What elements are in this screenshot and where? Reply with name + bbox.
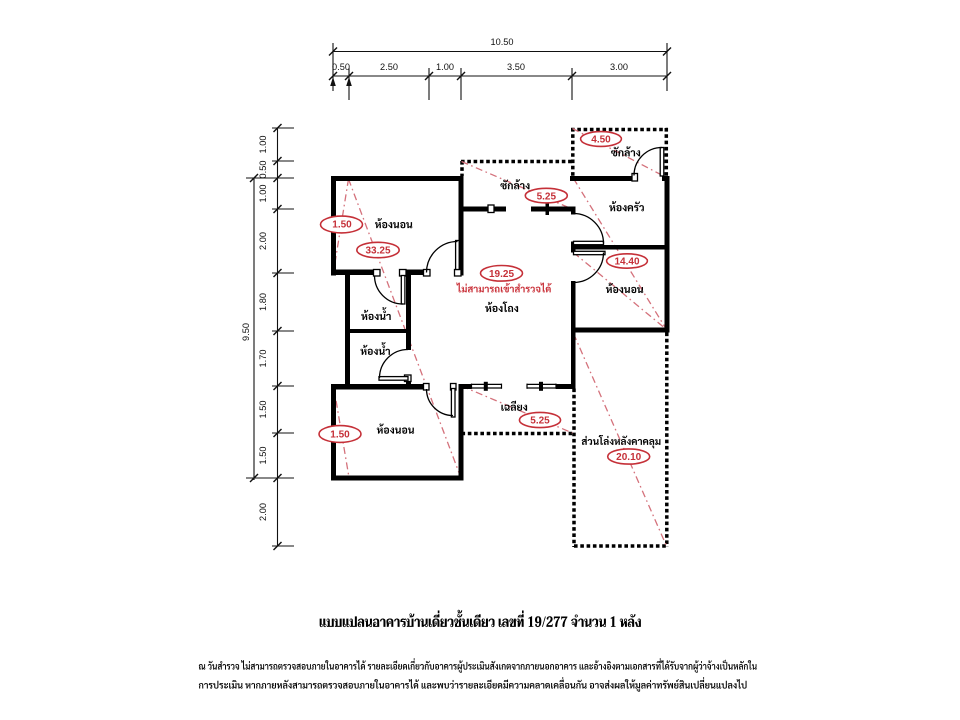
svg-text:1.50: 1.50: [332, 220, 352, 231]
svg-text:1.50: 1.50: [258, 447, 268, 465]
svg-text:1.00: 1.00: [258, 136, 268, 154]
svg-text:1.80: 1.80: [258, 293, 268, 311]
svg-text:20.10: 20.10: [616, 452, 641, 463]
svg-text:2.00: 2.00: [258, 232, 268, 250]
svg-text:14.40: 14.40: [614, 257, 639, 268]
svg-text:9.50: 9.50: [241, 323, 251, 341]
svg-text:3.00: 3.00: [610, 62, 628, 72]
svg-text:1.70: 1.70: [258, 350, 268, 368]
svg-text:2.00: 2.00: [258, 503, 268, 521]
svg-text:5.25: 5.25: [530, 416, 550, 427]
svg-text:1.00: 1.00: [436, 62, 454, 72]
svg-text:33.25: 33.25: [365, 246, 390, 257]
svg-text:1.50: 1.50: [330, 430, 350, 441]
svg-text:10.50: 10.50: [491, 37, 514, 47]
svg-text:0.50: 0.50: [258, 161, 268, 179]
svg-text:1.00: 1.00: [258, 185, 268, 203]
svg-text:3.50: 3.50: [507, 62, 525, 72]
svg-text:4.50: 4.50: [591, 135, 611, 146]
svg-text:19.25: 19.25: [489, 269, 514, 280]
svg-text:0.50: 0.50: [332, 62, 350, 72]
svg-text:2.50: 2.50: [380, 62, 398, 72]
svg-text:1.50: 1.50: [258, 401, 268, 419]
svg-text:5.25: 5.25: [537, 191, 557, 202]
